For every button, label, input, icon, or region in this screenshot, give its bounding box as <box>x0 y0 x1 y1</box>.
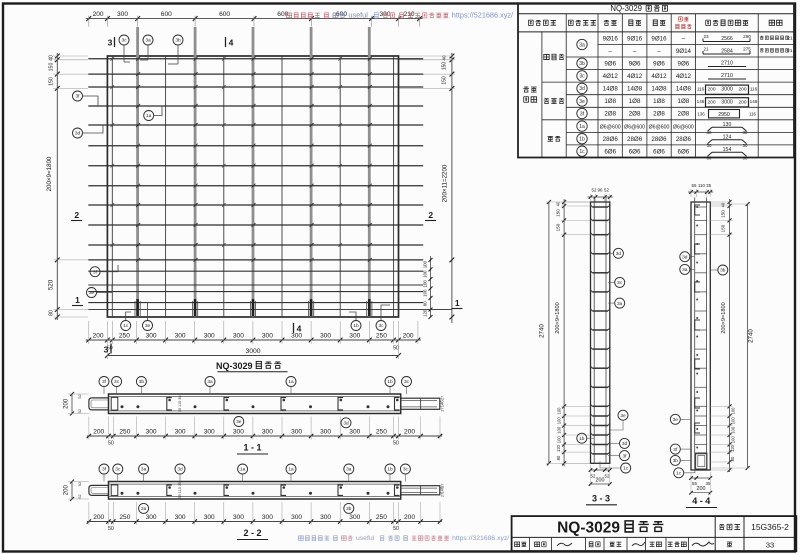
svg-text:15G365-2: 15G365-2 <box>751 522 789 532</box>
svg-text:52: 52 <box>78 482 82 486</box>
svg-text:300: 300 <box>349 333 360 340</box>
svg-text:52: 52 <box>78 409 82 413</box>
svg-text:2584: 2584 <box>721 49 733 55</box>
svg-text:3c: 3c <box>403 467 409 473</box>
svg-text:3 - 3: 3 - 3 <box>592 494 610 504</box>
svg-text:useful: useful <box>356 535 375 542</box>
svg-text:116: 116 <box>749 112 757 117</box>
svg-text:200: 200 <box>403 333 414 340</box>
svg-text:300: 300 <box>233 333 244 340</box>
svg-text:https://321686.xyz/: https://321686.xyz/ <box>452 535 509 542</box>
svg-text:600: 600 <box>219 11 230 18</box>
svg-text:6Ø6: 6Ø6 <box>629 148 641 155</box>
svg-text:9Ø16: 9Ø16 <box>603 35 619 42</box>
svg-text:9Ø16: 9Ø16 <box>627 35 643 42</box>
svg-text:275: 275 <box>743 46 751 51</box>
svg-text:300: 300 <box>320 333 331 340</box>
svg-text:300: 300 <box>262 514 273 521</box>
svg-text:52: 52 <box>604 188 609 193</box>
svg-text:120: 120 <box>556 444 561 452</box>
svg-text:2740: 2740 <box>748 329 755 343</box>
svg-text:116: 116 <box>697 86 705 91</box>
svg-text:100: 100 <box>423 260 428 268</box>
svg-text:1Ø8: 1Ø8 <box>678 98 690 105</box>
svg-text:2: 2 <box>74 210 79 220</box>
svg-text:3a: 3a <box>141 467 147 473</box>
svg-text:28Ø6: 28Ø6 <box>603 136 619 143</box>
svg-text:1a: 1a <box>579 124 585 130</box>
svg-text:3a: 3a <box>617 301 623 307</box>
svg-text:300: 300 <box>262 333 273 340</box>
svg-text:2566: 2566 <box>721 36 733 42</box>
svg-text:300: 300 <box>320 514 331 521</box>
svg-text:30: 30 <box>743 155 748 160</box>
svg-text:3e: 3e <box>579 99 585 105</box>
svg-text:3b: 3b <box>346 506 352 512</box>
svg-text:9Ø6: 9Ø6 <box>678 61 690 68</box>
svg-text:9Ø6: 9Ø6 <box>604 61 616 68</box>
svg-text:300: 300 <box>146 514 157 521</box>
svg-text:300: 300 <box>204 333 215 340</box>
svg-text:3c: 3c <box>114 379 120 385</box>
svg-text:3000: 3000 <box>721 99 733 105</box>
svg-text:35: 35 <box>706 183 711 188</box>
svg-text:3b: 3b <box>139 379 145 385</box>
svg-text:600: 600 <box>161 11 172 18</box>
svg-text:200: 200 <box>404 429 415 436</box>
svg-text:–: – <box>682 35 686 42</box>
svg-text:150: 150 <box>442 76 448 85</box>
svg-text:NQ-3029: NQ-3029 <box>557 520 620 537</box>
svg-text:3d: 3d <box>75 131 81 137</box>
svg-text:3e: 3e <box>620 413 626 419</box>
svg-text:300: 300 <box>175 429 186 436</box>
svg-text:4 - 4: 4 - 4 <box>692 496 710 506</box>
svg-text:14Ø8: 14Ø8 <box>627 86 643 93</box>
svg-text:150: 150 <box>556 223 561 231</box>
svg-text:33: 33 <box>766 540 774 549</box>
svg-text:150: 150 <box>49 63 55 72</box>
svg-text:6Ø6: 6Ø6 <box>604 148 616 155</box>
svg-text:80: 80 <box>730 456 735 461</box>
svg-text:300: 300 <box>175 514 186 521</box>
svg-text:200×9=1800: 200×9=1800 <box>555 302 561 333</box>
svg-text:3f: 3f <box>75 94 80 100</box>
svg-text:52: 52 <box>592 188 597 193</box>
svg-text:200: 200 <box>93 429 104 436</box>
svg-text:250: 250 <box>119 514 130 521</box>
svg-text:200: 200 <box>404 514 415 521</box>
svg-text:3d: 3d <box>343 421 349 427</box>
svg-text:40: 40 <box>49 55 55 61</box>
svg-text:–: – <box>657 48 661 55</box>
svg-text:52: 52 <box>78 494 82 498</box>
svg-text:1a: 1a <box>288 467 294 473</box>
svg-text:3b: 3b <box>720 268 726 274</box>
svg-text:100: 100 <box>556 426 561 434</box>
svg-text:3d: 3d <box>622 441 628 447</box>
svg-text:300: 300 <box>146 333 157 340</box>
svg-text:300: 300 <box>349 514 360 521</box>
svg-text:50: 50 <box>108 526 114 532</box>
svg-text:27: 27 <box>441 493 445 497</box>
svg-text:3c: 3c <box>404 379 410 385</box>
svg-text:3000: 3000 <box>721 87 733 93</box>
svg-text:1b: 1b <box>579 137 585 143</box>
svg-text:50: 50 <box>393 526 399 532</box>
svg-text:290: 290 <box>743 34 751 39</box>
svg-text:300: 300 <box>117 11 128 18</box>
svg-text:3e: 3e <box>673 417 679 423</box>
svg-text:200: 200 <box>596 478 605 484</box>
svg-text:150: 150 <box>49 77 55 86</box>
svg-text:–: – <box>633 48 637 55</box>
svg-text:1c: 1c <box>676 471 682 477</box>
svg-text:200: 200 <box>697 486 706 492</box>
svg-text:520: 520 <box>48 279 55 290</box>
svg-text:300: 300 <box>291 429 302 436</box>
svg-text:100: 100 <box>423 289 428 297</box>
svg-text:1 - 1: 1 - 1 <box>243 443 261 453</box>
svg-text:3c: 3c <box>378 323 384 329</box>
svg-text:300: 300 <box>262 429 273 436</box>
svg-text:27: 27 <box>441 396 445 400</box>
svg-text:250: 250 <box>119 429 130 436</box>
svg-text:2Ø8: 2Ø8 <box>678 111 690 118</box>
svg-text:300: 300 <box>349 429 360 436</box>
svg-text:23: 23 <box>703 34 709 39</box>
svg-text:3: 3 <box>108 38 113 48</box>
svg-text:2: 2 <box>428 210 433 220</box>
svg-text:NQ-3029: NQ-3029 <box>610 4 642 13</box>
svg-text:3a: 3a <box>682 267 688 273</box>
svg-text:1: 1 <box>455 298 460 308</box>
svg-text:2 - 2: 2 - 2 <box>243 528 261 538</box>
svg-text:30: 30 <box>707 155 712 160</box>
svg-text:80: 80 <box>49 310 55 316</box>
svg-text:130: 130 <box>723 122 732 128</box>
svg-text:100: 100 <box>730 407 735 415</box>
svg-text:28Ø6: 28Ø6 <box>676 136 692 143</box>
svg-text:6Ø6: 6Ø6 <box>678 148 690 155</box>
svg-text:50: 50 <box>393 346 399 352</box>
svg-text:3d: 3d <box>579 86 585 92</box>
svg-text:3b: 3b <box>579 61 585 67</box>
svg-text:3f: 3f <box>102 467 107 473</box>
svg-text:4: 4 <box>297 324 302 334</box>
svg-text:52: 52 <box>605 474 610 479</box>
svg-text:52: 52 <box>78 394 82 398</box>
svg-text:28Ø6: 28Ø6 <box>651 136 667 143</box>
svg-text:1Ø8: 1Ø8 <box>604 98 616 105</box>
svg-text:100: 100 <box>423 280 428 288</box>
svg-text:100: 100 <box>556 436 561 444</box>
svg-text:200: 200 <box>707 87 715 93</box>
svg-text:200: 200 <box>707 99 715 105</box>
svg-text:9Ø6: 9Ø6 <box>653 61 665 68</box>
svg-text:3a: 3a <box>207 379 213 385</box>
svg-text:2710: 2710 <box>721 61 733 67</box>
svg-text:2740: 2740 <box>539 324 546 338</box>
svg-text:300: 300 <box>291 514 302 521</box>
svg-text:250: 250 <box>376 333 387 340</box>
svg-text:3a: 3a <box>145 38 151 44</box>
svg-text:3e: 3e <box>236 419 242 425</box>
svg-text:300: 300 <box>204 429 215 436</box>
svg-text:100: 100 <box>556 407 561 415</box>
svg-text:3c: 3c <box>115 467 121 473</box>
svg-text:2950: 2950 <box>718 112 730 118</box>
svg-text:300: 300 <box>204 514 215 521</box>
svg-text:3d: 3d <box>177 467 183 473</box>
svg-text:3e: 3e <box>89 290 95 296</box>
svg-text:14Ø8: 14Ø8 <box>651 86 667 93</box>
svg-text:150: 150 <box>442 62 448 71</box>
svg-text:100: 100 <box>730 426 735 434</box>
svg-text:2710: 2710 <box>721 73 733 79</box>
svg-text:3e: 3e <box>145 323 151 329</box>
svg-text:3c: 3c <box>579 74 585 80</box>
svg-text:35 110 35: 35 110 35 <box>178 395 182 412</box>
svg-text:150: 150 <box>721 224 726 232</box>
svg-text:4Ø12: 4Ø12 <box>627 73 643 80</box>
svg-text:2Ø8: 2Ø8 <box>629 111 641 118</box>
svg-text:100: 100 <box>556 417 561 425</box>
svg-text:4Ø12: 4Ø12 <box>676 73 692 80</box>
svg-text:Ø6@600: Ø6@600 <box>673 124 694 130</box>
svg-text:200: 200 <box>93 514 104 521</box>
svg-text:100: 100 <box>730 417 735 425</box>
svg-text:50: 50 <box>393 441 399 447</box>
svg-text:3a: 3a <box>579 42 585 48</box>
svg-text:21: 21 <box>787 36 793 42</box>
svg-text:150: 150 <box>556 209 561 217</box>
svg-text:useful: useful <box>348 11 368 20</box>
svg-text:146: 146 <box>440 400 445 408</box>
svg-text:21: 21 <box>787 48 793 54</box>
svg-text:100: 100 <box>423 270 428 278</box>
svg-text:200×11=2200: 200×11=2200 <box>442 164 449 202</box>
svg-text:3: 3 <box>104 345 109 355</box>
svg-text:300: 300 <box>175 333 186 340</box>
svg-text:30: 30 <box>743 143 748 148</box>
svg-text:30: 30 <box>707 143 712 148</box>
svg-text:120: 120 <box>423 309 428 317</box>
svg-text:4: 4 <box>229 38 234 48</box>
svg-text:200: 200 <box>93 11 104 18</box>
svg-text:300: 300 <box>233 514 244 521</box>
svg-text:https://521686.xyz/: https://521686.xyz/ <box>452 11 514 20</box>
svg-text:1c: 1c <box>623 466 629 472</box>
svg-text:146: 146 <box>750 99 758 104</box>
svg-text:21: 21 <box>703 46 709 51</box>
svg-text:2Ø8: 2Ø8 <box>604 111 616 118</box>
svg-text:1a: 1a <box>240 467 246 473</box>
svg-text:3c: 3c <box>121 38 127 44</box>
svg-text:3f: 3f <box>580 111 585 117</box>
svg-text:3c: 3c <box>617 280 623 286</box>
svg-text:200×9=1800: 200×9=1800 <box>46 156 53 191</box>
svg-text:9Ø6: 9Ø6 <box>629 61 641 68</box>
svg-text:1a: 1a <box>288 379 294 385</box>
svg-text:80: 80 <box>423 301 428 306</box>
svg-text:3f: 3f <box>673 447 678 453</box>
svg-text:3d: 3d <box>682 254 688 260</box>
svg-text:300: 300 <box>291 333 302 340</box>
svg-text:210: 210 <box>404 11 415 18</box>
svg-text:250: 250 <box>376 514 387 521</box>
svg-text:30: 30 <box>707 130 712 135</box>
svg-text:1a: 1a <box>146 113 152 119</box>
svg-text:2Ø8: 2Ø8 <box>653 111 665 118</box>
svg-text:28Ø6: 28Ø6 <box>627 136 643 143</box>
svg-text:NQ-3029: NQ-3029 <box>216 361 253 371</box>
svg-text:Ø6@600: Ø6@600 <box>624 124 645 130</box>
svg-text:1Ø8: 1Ø8 <box>653 98 665 105</box>
svg-text:80: 80 <box>556 455 561 460</box>
svg-text:3a: 3a <box>141 506 147 512</box>
svg-text:1b: 1b <box>387 467 393 473</box>
svg-text:250: 250 <box>119 333 130 340</box>
svg-text:1b: 1b <box>387 379 393 385</box>
svg-text:30: 30 <box>743 130 748 135</box>
svg-text:154: 154 <box>723 147 732 153</box>
svg-text:14Ø8: 14Ø8 <box>603 86 619 93</box>
svg-text:200: 200 <box>64 485 70 496</box>
svg-text:1c: 1c <box>123 323 129 329</box>
svg-text:116: 116 <box>750 86 758 91</box>
svg-text:300: 300 <box>233 429 244 436</box>
svg-text:9Ø16: 9Ø16 <box>651 35 667 42</box>
svg-text:14Ø8: 14Ø8 <box>676 86 692 93</box>
svg-text:120: 120 <box>730 444 735 452</box>
svg-text:146: 146 <box>440 486 445 494</box>
svg-text:40: 40 <box>721 202 726 207</box>
svg-text:40: 40 <box>442 55 447 61</box>
svg-text:146: 146 <box>697 99 705 104</box>
svg-text:250: 250 <box>376 429 387 436</box>
svg-text:100: 100 <box>730 436 735 444</box>
svg-text:200: 200 <box>93 333 104 340</box>
svg-text:200×9=1800: 200×9=1800 <box>721 302 727 333</box>
svg-text:300: 300 <box>146 429 157 436</box>
svg-text:55: 55 <box>692 183 697 188</box>
svg-text:96: 96 <box>598 188 603 193</box>
svg-text:3f: 3f <box>622 453 627 459</box>
svg-text:200: 200 <box>738 99 746 105</box>
svg-text:136: 136 <box>697 112 705 117</box>
svg-text:–: – <box>608 48 612 55</box>
svg-text:200: 200 <box>738 87 746 93</box>
svg-text:3f: 3f <box>93 269 98 275</box>
svg-text:1: 1 <box>75 295 80 305</box>
svg-text:150: 150 <box>721 210 726 218</box>
svg-text:3d: 3d <box>616 251 622 257</box>
svg-text:4Ø12: 4Ø12 <box>603 73 619 80</box>
svg-text:50: 50 <box>108 441 114 447</box>
svg-text:35 110 35: 35 110 35 <box>178 482 182 499</box>
svg-text:4Ø12: 4Ø12 <box>651 73 667 80</box>
svg-text:300: 300 <box>320 429 331 436</box>
svg-text:3f: 3f <box>102 379 107 385</box>
svg-text:27: 27 <box>441 407 445 411</box>
svg-text:3a: 3a <box>346 467 352 473</box>
svg-text:Ø6@600: Ø6@600 <box>600 124 621 130</box>
svg-text:200: 200 <box>64 398 70 409</box>
svg-text:1c: 1c <box>579 149 585 155</box>
svg-text:6Ø6: 6Ø6 <box>653 148 665 155</box>
svg-text:Ø6@600: Ø6@600 <box>649 124 670 130</box>
svg-text:1b: 1b <box>353 323 359 329</box>
svg-text:3000: 3000 <box>245 348 260 355</box>
svg-text:110: 110 <box>698 183 706 188</box>
svg-text:1Ø8: 1Ø8 <box>629 98 641 105</box>
svg-text:3b: 3b <box>673 458 679 464</box>
svg-text:124: 124 <box>723 135 732 141</box>
svg-text:1b: 1b <box>579 436 585 442</box>
svg-text:3b: 3b <box>175 38 181 44</box>
svg-text:9Ø14: 9Ø14 <box>676 48 692 55</box>
